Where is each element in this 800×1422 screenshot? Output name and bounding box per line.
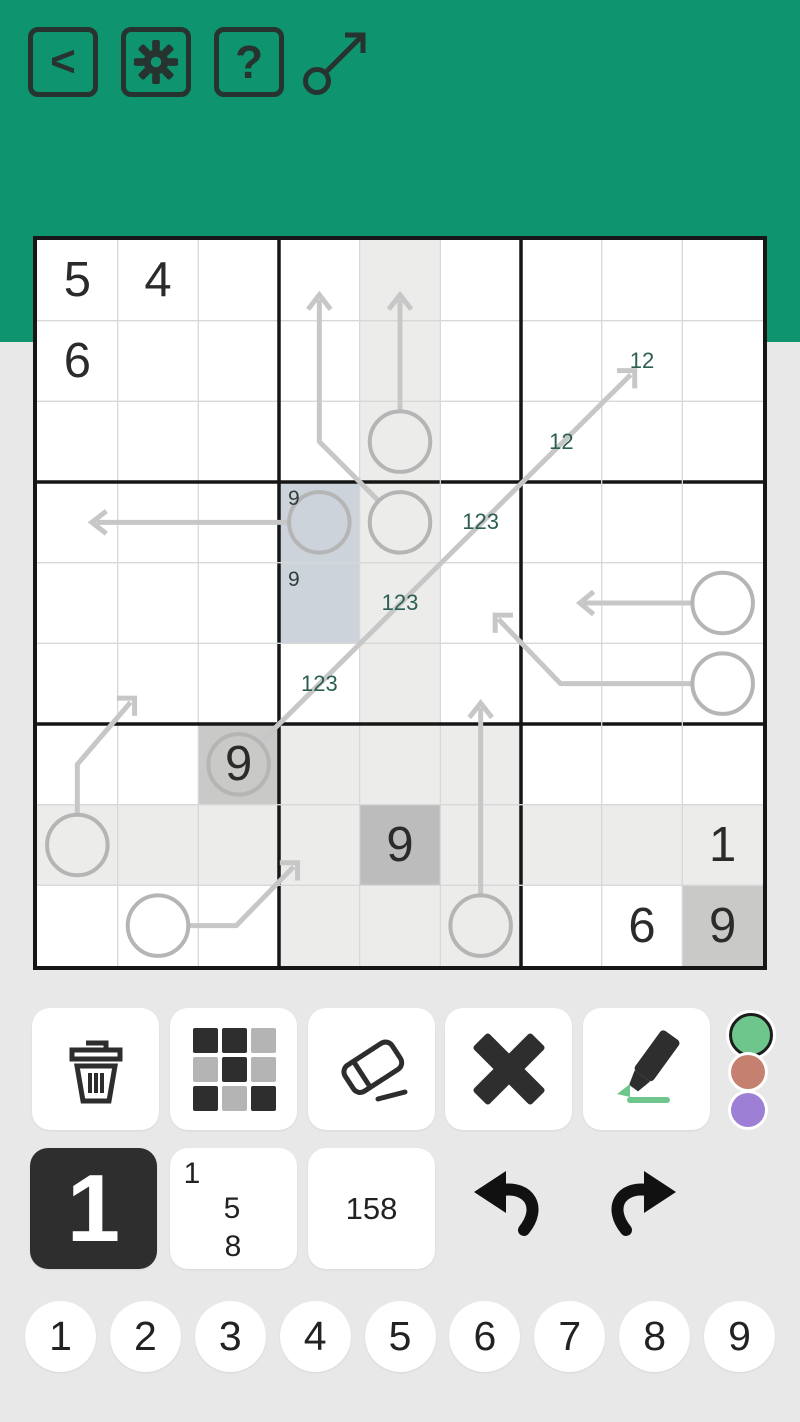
digit-button-5[interactable]: 5 xyxy=(365,1301,436,1372)
digit-button-7[interactable]: 7 xyxy=(534,1301,605,1372)
center-mark-r5c5: 123 xyxy=(360,563,441,644)
digit-button-9[interactable]: 9 xyxy=(704,1301,775,1372)
digit-row: 123456789 xyxy=(0,1301,800,1372)
given-digit-r9c8: 6 xyxy=(602,885,683,966)
marks-layer: 54699169121212312312399 xyxy=(37,240,763,966)
back-icon: < xyxy=(50,40,76,84)
given-digit-r8c9: 1 xyxy=(682,805,763,886)
x-icon xyxy=(466,1026,552,1112)
corner-mark-value-3: 8 xyxy=(225,1230,242,1264)
digit-button-6[interactable]: 6 xyxy=(449,1301,520,1372)
center-mark-mode-button[interactable]: 158 xyxy=(308,1148,435,1269)
center-mark-r3c7: 12 xyxy=(521,401,602,482)
digit-button-1[interactable]: 1 xyxy=(25,1301,96,1372)
delete-button[interactable] xyxy=(32,1008,159,1130)
trash-icon xyxy=(56,1029,136,1109)
palette-dot-green[interactable] xyxy=(729,1013,773,1057)
given-digit-r7c3: 9 xyxy=(198,724,279,805)
palette-dot-red[interactable] xyxy=(731,1055,765,1089)
arrow-sudoku-icon xyxy=(300,22,376,98)
big-number-value: 1 xyxy=(30,1148,157,1269)
redo-button[interactable] xyxy=(598,1168,678,1240)
undo-button[interactable] xyxy=(472,1168,552,1240)
help-button[interactable]: ? xyxy=(214,27,284,97)
eraser-icon xyxy=(331,1028,413,1110)
palette-dot-purple[interactable] xyxy=(731,1093,765,1127)
help-icon: ? xyxy=(235,39,263,85)
given-digit-r1c2: 4 xyxy=(118,240,199,321)
given-digit-r9c9: 9 xyxy=(682,885,763,966)
center-mark-r4c6: 123 xyxy=(440,482,521,563)
digit-button-2[interactable]: 2 xyxy=(110,1301,181,1372)
close-button[interactable] xyxy=(445,1008,572,1130)
given-digit-r1c1: 5 xyxy=(37,240,118,321)
given-digit-r8c5: 9 xyxy=(360,805,441,886)
center-mark-r2c8: 12 xyxy=(602,321,683,402)
eraser-button[interactable] xyxy=(308,1008,435,1130)
given-digit-r2c1: 6 xyxy=(37,321,118,402)
redo-icon xyxy=(598,1168,678,1240)
corner-mark-value-1: 1 xyxy=(184,1157,201,1191)
digit-button-8[interactable]: 8 xyxy=(619,1301,690,1372)
corner-mark-r5c4: 9 xyxy=(279,563,360,644)
center-mark-r6c4: 123 xyxy=(279,643,360,724)
marker-button[interactable] xyxy=(583,1008,710,1130)
undo-icon xyxy=(472,1168,552,1240)
corner-mark-value-2: 5 xyxy=(224,1192,241,1226)
digit-button-3[interactable]: 3 xyxy=(195,1301,266,1372)
gear-icon xyxy=(133,39,179,85)
sudoku-grid: 54699169121212312312399 xyxy=(33,236,767,970)
corner-mark-mode-button[interactable]: 1 5 8 xyxy=(170,1148,297,1269)
center-mark-value: 158 xyxy=(308,1148,435,1269)
marker-icon xyxy=(605,1027,689,1111)
color-grid-icon xyxy=(186,1021,282,1117)
back-button[interactable]: < xyxy=(28,27,98,97)
color-grid-button[interactable] xyxy=(170,1008,297,1130)
corner-mark-r4c4: 9 xyxy=(279,482,360,563)
big-number-mode-button[interactable]: 1 xyxy=(30,1148,157,1269)
settings-button[interactable] xyxy=(121,27,191,97)
digit-button-4[interactable]: 4 xyxy=(280,1301,351,1372)
